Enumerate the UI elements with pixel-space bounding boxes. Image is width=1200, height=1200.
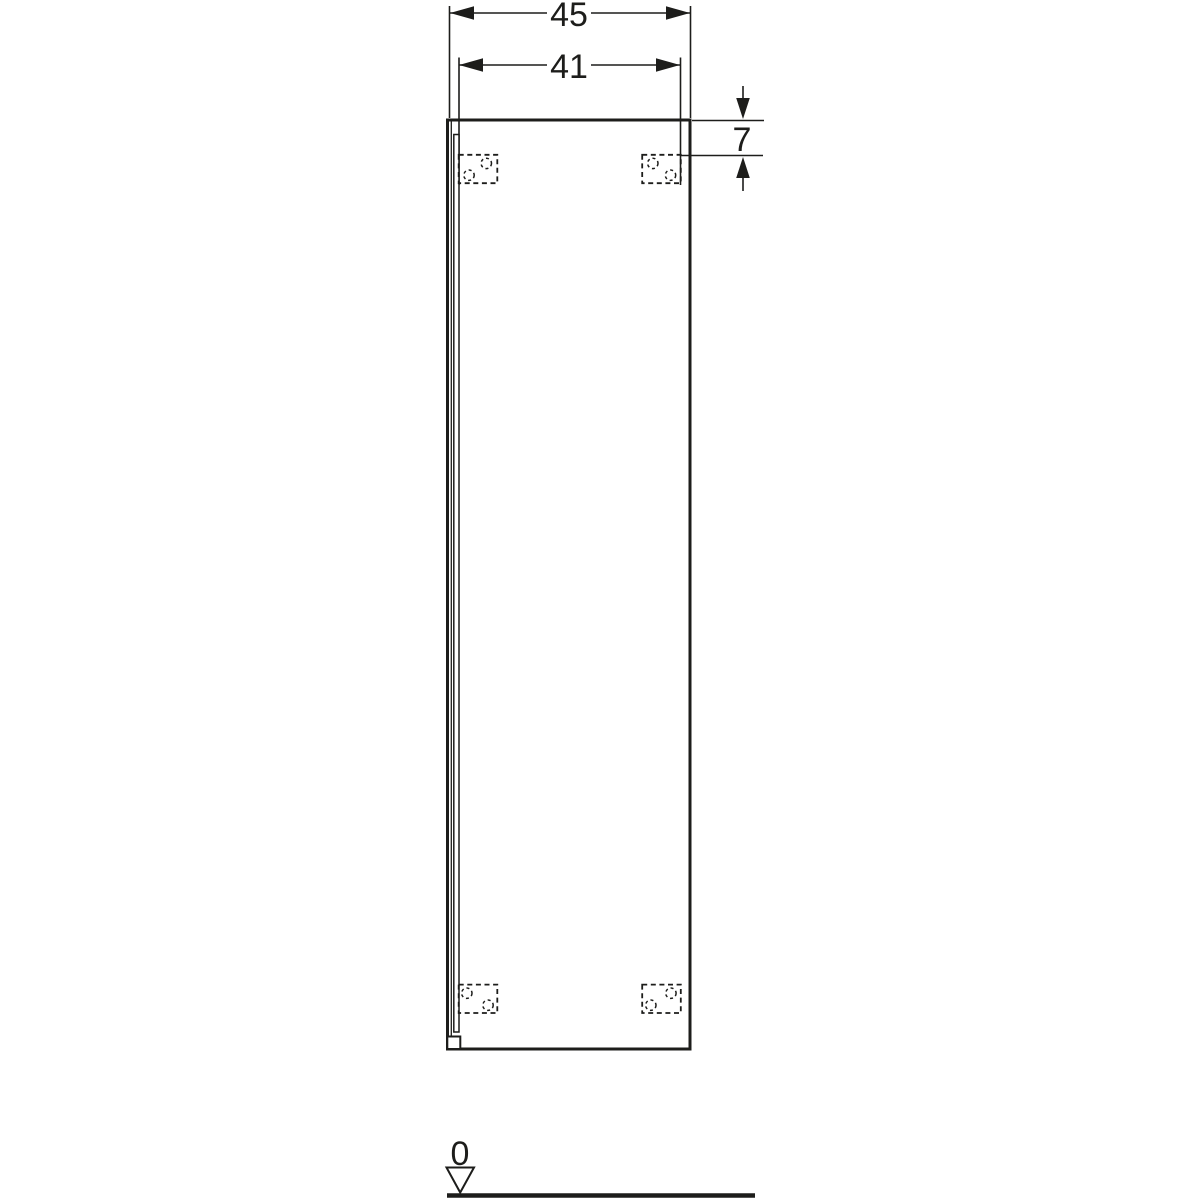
dimension-top-offset: 7 xyxy=(681,86,764,191)
dimension-label-mount-spacing: 41 xyxy=(550,48,588,86)
dimension-label-top-offset: 7 xyxy=(733,121,752,159)
dimension-label-total-width: 45 xyxy=(550,0,588,34)
bracket-outline xyxy=(459,985,498,1013)
arrowhead-left-icon xyxy=(450,6,474,20)
screw-hole xyxy=(481,158,491,168)
mounting-bracket-bottom-left xyxy=(459,985,498,1013)
cabinet-outline xyxy=(447,120,690,1049)
arrowhead-right-icon xyxy=(666,6,690,20)
mounting-bracket-top-left xyxy=(459,155,498,183)
cabinet-dimension-drawing: 45 41 7 xyxy=(0,0,1200,1200)
arrowhead-right-icon xyxy=(656,58,680,72)
screw-hole xyxy=(464,170,474,180)
screw-hole xyxy=(665,170,675,180)
arrowhead-left-icon xyxy=(459,58,483,72)
screw-hole xyxy=(646,1000,656,1010)
floor-datum: 0 xyxy=(447,1135,756,1196)
screw-hole xyxy=(462,988,472,998)
door-edge-strip xyxy=(454,135,459,1033)
cabinet-body xyxy=(448,120,691,1049)
mounting-bracket-top-right xyxy=(642,155,681,183)
door-bottom-cap xyxy=(447,1037,460,1050)
screw-hole xyxy=(648,158,658,168)
screw-hole xyxy=(666,988,676,998)
technical-drawing-page: 45 41 7 xyxy=(0,0,1200,1200)
arrowhead-up-icon xyxy=(736,157,750,178)
arrowhead-down-icon xyxy=(736,98,750,119)
datum-triangle-icon xyxy=(447,1168,475,1193)
bracket-outline xyxy=(642,985,681,1013)
bracket-outline xyxy=(642,155,681,183)
screw-hole xyxy=(483,1000,493,1010)
mounting-bracket-bottom-right xyxy=(642,985,681,1013)
